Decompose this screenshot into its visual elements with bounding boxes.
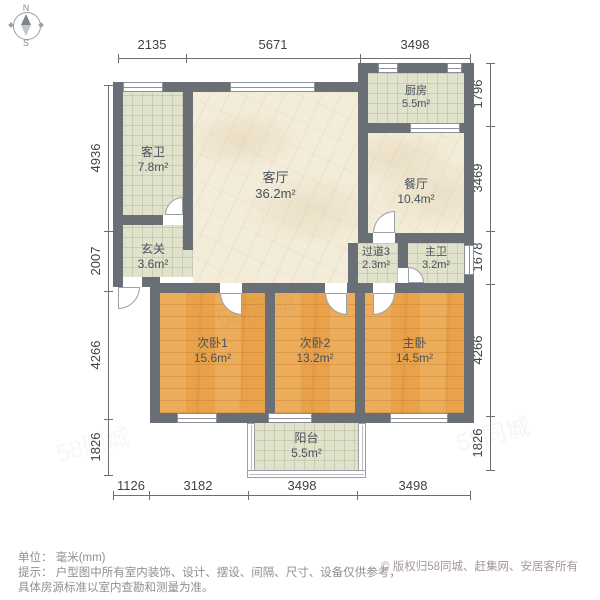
dimension-line (113, 495, 470, 496)
dim-tick (470, 491, 471, 500)
dim-tick (486, 63, 495, 64)
compass-needle-icon (21, 25, 31, 36)
dim-tick (248, 491, 249, 500)
room-name: 次卧2 (275, 336, 355, 351)
room-area: 10.4m² (368, 192, 464, 207)
dim-tick (470, 54, 471, 63)
dim-tick (486, 470, 495, 471)
room-name: 玄关 (123, 242, 183, 257)
dim-tick (486, 231, 495, 232)
room-name: 餐厅 (368, 177, 464, 192)
dim-left-3: 4266 (89, 321, 103, 389)
dim-bottom-3: 3498 (268, 479, 336, 493)
dim-tick (149, 491, 150, 500)
dim-bottom-1: 1126 (97, 479, 165, 493)
dim-tick (486, 416, 495, 417)
unit-note: 单位： 毫米(mm) (18, 549, 106, 565)
compass-south-label: S (6, 38, 46, 48)
window (410, 123, 460, 133)
wall-segment (395, 283, 474, 293)
wall-segment (150, 283, 160, 423)
wall-segment (265, 293, 275, 413)
room-label-living: 客厅 36.2m² (193, 170, 358, 202)
tip-note-line1: 提示： 户型图中所有室内装饰、设计、摆设、间隔、尺寸、设备仅供参考， (18, 564, 401, 580)
dim-left-2: 2007 (89, 227, 103, 295)
room-label-dining: 餐厅 10.4m² (368, 177, 464, 207)
dim-tick (486, 284, 495, 285)
room-label-master-bedroom: 主卧 14.5m² (365, 336, 464, 366)
compass-icon: N S (6, 2, 46, 48)
window (464, 245, 474, 275)
window (230, 82, 315, 92)
floorplan-canvas: N S 58同城 58同城 58同城 客卫 7.8m² 玄关 3.6m² 客厅 … (0, 0, 600, 600)
dim-tick (186, 54, 187, 63)
dim-tick (104, 291, 113, 292)
wall-segment (113, 82, 123, 287)
room-name: 次卧1 (160, 336, 265, 351)
door-arc (118, 287, 140, 309)
dim-top-3: 3498 (381, 38, 449, 52)
window (123, 82, 163, 92)
room-area: 14.5m² (365, 351, 464, 366)
dim-bottom-4: 3498 (379, 479, 447, 493)
room-area: 7.8m² (123, 160, 183, 175)
room-name: 主卧 (365, 336, 464, 351)
room-name: 阳台 (255, 431, 358, 446)
window (447, 63, 462, 73)
wall-segment (398, 243, 408, 268)
dim-tick (104, 85, 113, 86)
room-area: 5.5m² (255, 446, 358, 461)
dim-top-2: 5671 (239, 38, 307, 52)
wall-segment (395, 233, 474, 243)
dim-left-4: 1826 (89, 413, 103, 481)
room-area: 36.2m² (193, 186, 358, 202)
room-name: 过道3 (354, 246, 398, 259)
room-label-kitchen: 厨房 5.5m² (368, 85, 464, 111)
dim-tick (104, 231, 113, 232)
wall-segment (355, 293, 365, 413)
dim-tick (104, 419, 113, 420)
dimension-line (490, 63, 491, 470)
room-area: 13.2m² (275, 351, 355, 366)
room-area: 15.6m² (160, 351, 265, 366)
room-label-hallway3: 过道3 2.3m² (354, 246, 398, 272)
room-label-balcony: 阳台 5.5m² (255, 431, 358, 461)
room-name: 厨房 (368, 85, 464, 98)
dim-tick (360, 54, 361, 63)
wall-segment (358, 63, 368, 243)
window (268, 413, 312, 423)
room-area: 2.3m² (354, 259, 398, 272)
wall-segment (150, 283, 220, 293)
dim-tick (357, 491, 358, 500)
wall-segment (242, 283, 325, 293)
room-label-bedroom1: 次卧1 15.6m² (160, 336, 265, 366)
room-label-master-bath: 主卫 3.2m² (408, 246, 464, 272)
dim-tick (104, 475, 113, 476)
wall-segment (183, 82, 193, 250)
window (390, 413, 448, 423)
dim-bottom-2: 3182 (164, 479, 232, 493)
dim-tick (118, 54, 119, 63)
wall-segment (348, 243, 358, 293)
dim-tick (113, 491, 114, 500)
room-area: 3.6m² (123, 257, 183, 272)
room-name: 客卫 (123, 145, 183, 160)
window (177, 413, 217, 423)
compass-needle-icon (21, 14, 31, 25)
room-name: 主卫 (408, 246, 464, 259)
dim-tick (486, 126, 495, 127)
room-label-guest-bath: 客卫 7.8m² (123, 145, 183, 175)
room-entry-opening (183, 250, 193, 277)
dim-left-1: 4936 (89, 124, 103, 192)
room-area: 5.5m² (368, 98, 464, 111)
room-name: 客厅 (193, 170, 358, 186)
window (378, 63, 398, 73)
wall-segment (464, 63, 474, 423)
dim-top-1: 2135 (118, 38, 186, 52)
balcony-railing (247, 470, 366, 478)
dimension-line (108, 85, 109, 475)
tip-note-line2: 具体房源标准以室内查勘和测量为准。 (18, 579, 214, 595)
room-label-entry: 玄关 3.6m² (123, 242, 183, 272)
room-label-bedroom2: 次卧2 13.2m² (275, 336, 355, 366)
dimension-line (118, 58, 470, 59)
copyright-note: © 版权归58同城、赶集网、安居客所有 (381, 558, 578, 574)
